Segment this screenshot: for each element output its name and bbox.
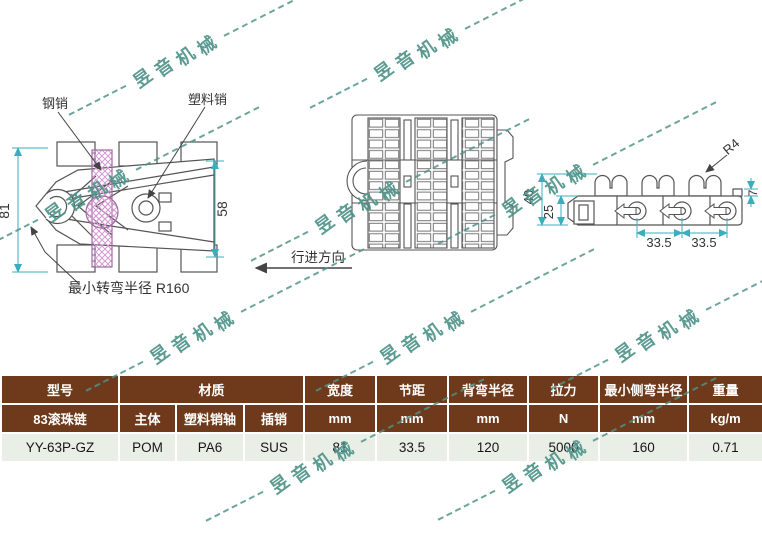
value-body-material: POM xyxy=(119,433,176,462)
plastic-pin-label: 塑料销 xyxy=(188,92,227,107)
header-tension: 拉力 xyxy=(528,375,599,404)
travel-direction-label: 行进方向 xyxy=(291,250,345,265)
technical-drawing: 钢销 塑料销 81 58 最小转弯半径 R160 行进方向 xyxy=(0,0,762,374)
value-backbend-radius: 120 xyxy=(448,433,528,462)
header-min-sidebend-radius: 最小侧弯半径 xyxy=(599,375,688,404)
steel-pin-label: 钢销 xyxy=(42,96,68,111)
dim-81-label: 81 xyxy=(0,203,12,219)
sub-unit-tension: N xyxy=(528,404,599,433)
value-pitch: 33.5 xyxy=(376,433,448,462)
sub-unit-width: mm xyxy=(304,404,376,433)
header-backbend-radius: 背弯半径 xyxy=(448,375,528,404)
spec-table: 型号 材质 宽度 节距 背弯半径 拉力 最小侧弯半径 重量 83滚珠链 主体 塑… xyxy=(0,374,762,463)
value-width: 81 xyxy=(304,433,376,462)
sub-series: 83滚珠链 xyxy=(1,404,119,433)
sub-unit-weight: kg/m xyxy=(688,404,762,433)
table-subheader-row: 83滚珠链 主体 塑料销轴 插销 mm mm mm N mm kg/m xyxy=(1,404,762,433)
value-insert-pin-material: SUS xyxy=(244,433,304,462)
dim-7-label: 7 xyxy=(746,189,760,196)
header-weight: 重量 xyxy=(688,375,762,404)
dim-pitch-left-label: 33.5 xyxy=(646,235,671,250)
dim-58-label: 58 xyxy=(214,201,230,217)
value-plastic-pin-material: PA6 xyxy=(176,433,244,462)
value-model: YY-63P-GZ xyxy=(1,433,119,462)
min-turn-radius-note: 最小转弯半径 R160 xyxy=(68,280,190,296)
header-material: 材质 xyxy=(119,375,304,404)
top-view xyxy=(347,115,513,250)
front-view xyxy=(36,142,217,272)
sub-insert-pin: 插销 xyxy=(244,404,304,433)
table-header-row: 型号 材质 宽度 节距 背弯半径 拉力 最小侧弯半径 重量 xyxy=(1,375,762,404)
dim-r4-label: R4 xyxy=(720,135,742,157)
sub-plastic-pin: 塑料销轴 xyxy=(176,404,244,433)
value-weight: 0.71 xyxy=(688,433,762,462)
header-width: 宽度 xyxy=(304,375,376,404)
r4-leader xyxy=(706,155,727,172)
side-view xyxy=(568,176,742,226)
sub-body: 主体 xyxy=(119,404,176,433)
table-value-row: YY-63P-GZ POM PA6 SUS 81 33.5 120 5000 1… xyxy=(1,433,762,462)
sub-unit-pitch: mm xyxy=(376,404,448,433)
value-tension: 5000 xyxy=(528,433,599,462)
header-model: 型号 xyxy=(1,375,119,404)
dim-pitch-right-label: 33.5 xyxy=(691,235,716,250)
dim-40-label: 40 xyxy=(521,190,536,204)
sub-unit-sidebend: mm xyxy=(599,404,688,433)
dim-25-label: 25 xyxy=(541,205,556,219)
sub-unit-backbend: mm xyxy=(448,404,528,433)
value-min-sidebend-radius: 160 xyxy=(599,433,688,462)
header-pitch: 节距 xyxy=(376,375,448,404)
